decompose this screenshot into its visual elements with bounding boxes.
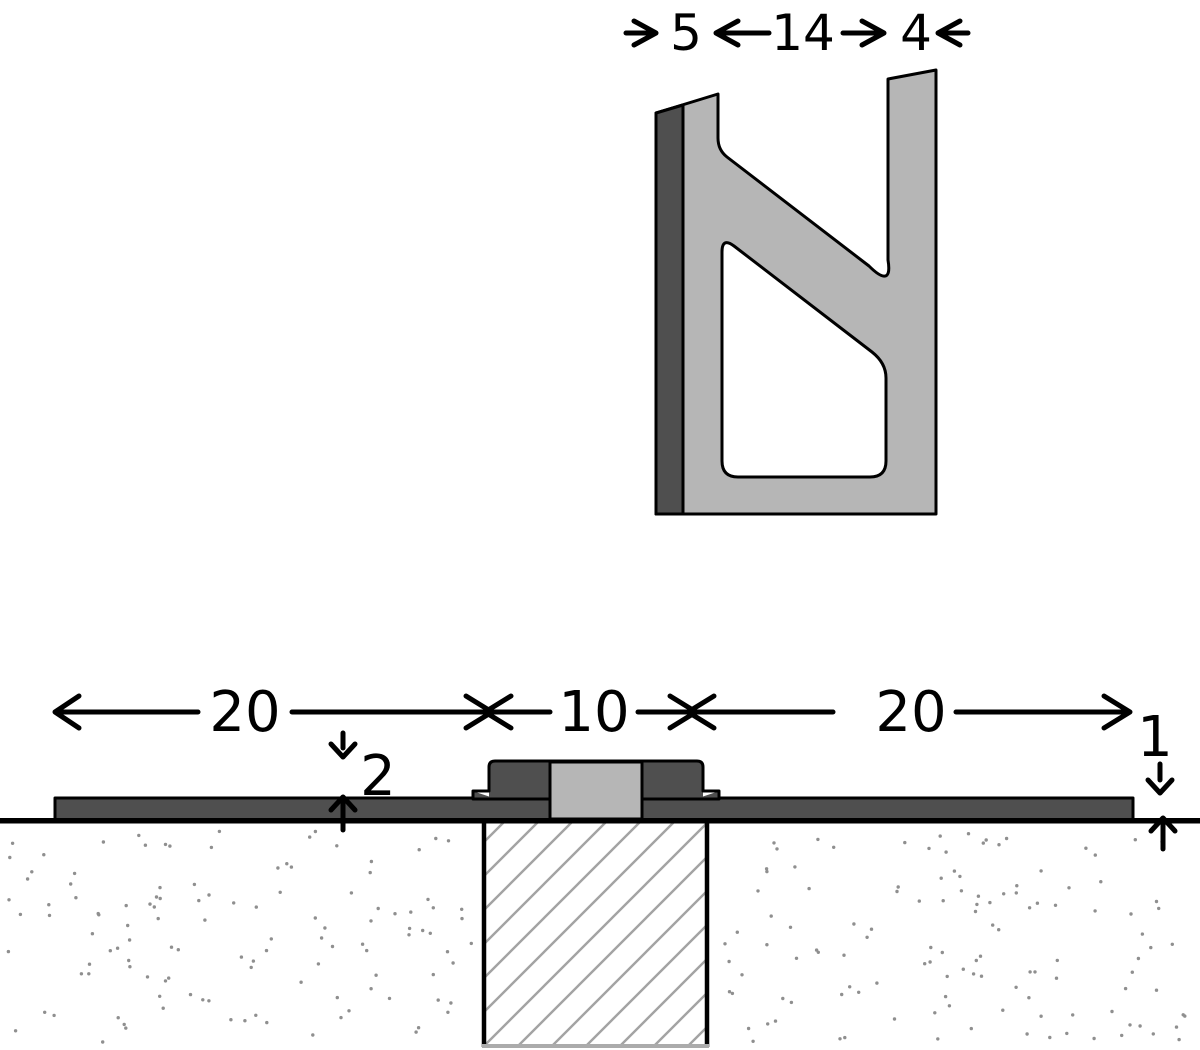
stipple-dot (840, 993, 843, 996)
stipple-dot (285, 862, 288, 865)
stipple-dot (19, 913, 22, 916)
stipple-dot (335, 844, 338, 847)
stipple-dot (852, 922, 855, 925)
stipple-dot (1149, 946, 1152, 949)
stipple-dot (772, 841, 775, 844)
stipple-dot (1171, 943, 1174, 946)
stipple-dot (923, 962, 926, 965)
stipple-dot (740, 973, 743, 976)
stipple-dot (331, 945, 334, 948)
dim-label-right-plate: 20 (875, 680, 946, 745)
profile-gasket-strip (656, 105, 683, 514)
stipple-dot (69, 882, 72, 885)
stipple-dot (1137, 957, 1140, 960)
stipple-dot (795, 957, 798, 960)
stipple-dot (350, 891, 353, 894)
stipple-dot (157, 917, 160, 920)
stipple-dot (942, 899, 945, 902)
stipple-dot (429, 932, 432, 935)
stipple-dot (125, 904, 128, 907)
stipple-dot (1138, 1024, 1141, 1027)
stipple-dot (1056, 959, 1059, 962)
stipple-dot (127, 959, 130, 962)
stipple-dot (731, 992, 734, 995)
stipple-dot (218, 830, 221, 833)
stipple-dot (958, 875, 961, 878)
stipple-dot (370, 860, 373, 863)
stipple-dot (982, 841, 985, 844)
stipple-dot (155, 895, 158, 898)
technical-drawing: 20 10 20 2 1 (0, 0, 1200, 1050)
stipple-dot (148, 902, 151, 905)
stipple-dot (460, 908, 463, 911)
stipple-dot (451, 961, 454, 964)
stipple-dot (270, 937, 273, 940)
stipple-dot (817, 951, 820, 954)
stipple-dot (320, 936, 323, 939)
stipple-dot (918, 899, 921, 902)
stipple-dot (377, 907, 380, 910)
stipple-dot (1048, 1036, 1051, 1039)
stipple-dot (974, 910, 977, 913)
stipple-dot (953, 869, 956, 872)
stipple-dot (967, 832, 970, 835)
stipple-dot (927, 847, 930, 850)
stipple-dot (1099, 880, 1102, 883)
stipple-dot (308, 835, 311, 838)
stipple-dot (865, 936, 868, 939)
stipple-dot (432, 906, 435, 909)
stipple-dot (1054, 904, 1057, 907)
dim-label-edge-thickness: 1 (1137, 705, 1173, 770)
stipple-dot (347, 1009, 350, 1012)
stipple-dot (1131, 971, 1134, 974)
stipple-dot (1155, 900, 1158, 903)
stipple-dot (1027, 996, 1030, 999)
stipple-dot (265, 949, 268, 952)
stipple-dot (893, 1017, 896, 1020)
dim-label-left-plate: 20 (209, 680, 280, 745)
foundation-hatch-fill (482, 821, 709, 1047)
stipple-dot (109, 949, 112, 952)
stipple-dot (985, 838, 988, 841)
stipple-dot (164, 979, 167, 982)
stipple-dot (895, 890, 898, 893)
stipple-dot (936, 1037, 939, 1040)
stipple-dot (168, 844, 171, 847)
stipple-dot (1155, 989, 1158, 992)
stipple-dot (116, 947, 119, 950)
stipple-dot (323, 926, 326, 929)
stipple-dot (52, 1014, 55, 1017)
stipple-dot (988, 901, 991, 904)
stipple-dot (164, 843, 167, 846)
stipple-dot (765, 867, 768, 870)
stipple-dot (144, 844, 147, 847)
stipple-dot (43, 1011, 46, 1014)
stipple-dot (736, 931, 739, 934)
stipple-dot (162, 1007, 165, 1010)
stipple-dot (941, 951, 944, 954)
stipple-dot (243, 1019, 246, 1022)
stipple-dot (434, 837, 437, 840)
stipple-dot (447, 839, 450, 842)
stipple-dot (1110, 1010, 1113, 1013)
stipple-dot (977, 895, 980, 898)
stipple-dot (265, 1021, 268, 1024)
stipple-dot (374, 974, 377, 977)
stipple-dot (14, 1029, 17, 1032)
stipple-dot (747, 1027, 750, 1030)
stipple-dot (751, 1040, 754, 1043)
stipple-dot (26, 877, 29, 880)
stipple-dot (317, 962, 320, 965)
stipple-dot (1093, 909, 1096, 912)
stipple-dot (1065, 1032, 1068, 1035)
dim-label-channel-gap: 14 (771, 4, 835, 62)
stipple-dot (1033, 970, 1036, 973)
stipple-dot (1028, 970, 1031, 973)
stipple-dot (30, 870, 33, 873)
stipple-dot (1120, 1034, 1123, 1037)
stipple-dot (939, 834, 942, 837)
stipple-dot (421, 929, 424, 932)
stipple-dot (1177, 1038, 1180, 1041)
stipple-dot (279, 891, 282, 894)
dim-label-right-wall: 4 (900, 4, 932, 62)
stipple-dot (1039, 1015, 1042, 1018)
stipple-dot (1175, 1025, 1178, 1028)
center-insert (550, 762, 642, 819)
stipple-dot (944, 850, 947, 853)
stipple-dot (189, 993, 192, 996)
stipple-dot (290, 865, 293, 868)
stipple-dot (962, 968, 965, 971)
stipple-dot (393, 912, 396, 915)
stipple-dot (940, 877, 943, 880)
dim-label-center-block: 10 (558, 680, 629, 745)
stipple-dot (1094, 853, 1097, 856)
stipple-dot (1067, 886, 1070, 889)
stipple-dot (1183, 1014, 1186, 1017)
stipple-dot (1129, 912, 1132, 915)
stipple-dot (124, 1026, 127, 1029)
stipple-dot (928, 960, 931, 963)
foundation-block (482, 821, 709, 1047)
stipple-dot (7, 950, 10, 953)
stipple-dot (369, 871, 372, 874)
stipple-dot (1014, 986, 1017, 989)
stipple-dot (80, 972, 83, 975)
stipple-dot (975, 959, 978, 962)
stipple-dot (409, 910, 412, 913)
stipple-dot (960, 889, 963, 892)
stipple-dot (254, 1014, 257, 1017)
stipple-dot (407, 933, 410, 936)
stipple-dot (47, 903, 50, 906)
stipple-dot (1002, 892, 1005, 895)
stipple-dot (470, 942, 473, 945)
stipple-dot (723, 942, 726, 945)
stipple-dot (1025, 1032, 1028, 1035)
stipple-dot (153, 905, 156, 908)
stipple-dot (781, 997, 784, 1000)
stipple-dot (299, 981, 302, 984)
stipple-dot (793, 865, 796, 868)
stipple-dot (252, 959, 255, 962)
stipple-dot (158, 886, 161, 889)
stipple-dot (365, 949, 368, 952)
stipple-dot (42, 853, 45, 856)
stipple-dot (229, 1018, 232, 1021)
stipple-dot (91, 932, 94, 935)
stipple-dot (970, 1027, 973, 1030)
stipple-dot (1141, 932, 1144, 935)
stipple-dot (339, 1016, 342, 1019)
stipple-dot (314, 916, 317, 919)
stipple-dot (369, 919, 372, 922)
stipple-dot (790, 1001, 793, 1004)
stipple-dot (991, 923, 994, 926)
stipple-dot (997, 843, 1000, 846)
stipple-dot (167, 976, 170, 979)
stipple-dot (193, 883, 196, 886)
ground-surface-line (0, 818, 1200, 824)
stipple-dot (857, 991, 860, 994)
stipple-dot (207, 999, 210, 1002)
stipple-dot (832, 846, 835, 849)
stipple-dot (838, 1037, 841, 1040)
stipple-dot (276, 866, 279, 869)
stipple-dot (240, 955, 243, 958)
stipple-dot (446, 1011, 449, 1014)
stipple-dot (250, 966, 253, 969)
stipple-dot (11, 842, 14, 845)
stipple-dot (765, 943, 768, 946)
stipple-dot (159, 897, 162, 900)
stipple-dot (232, 901, 235, 904)
stipple-dot (361, 943, 364, 946)
stipple-dot (1015, 884, 1018, 887)
stipple-dot (417, 1026, 420, 1029)
stipple-dot (897, 885, 900, 888)
stipple-dot (903, 841, 906, 844)
stipple-dot (975, 903, 978, 906)
stipple-dot (1028, 906, 1031, 909)
stipple-dot (8, 856, 11, 859)
stipple-dot (933, 1011, 936, 1014)
stipple-dot (137, 834, 140, 837)
stipple-dot (201, 998, 204, 1001)
stipple-dot (848, 985, 851, 988)
stipple-dot (948, 1004, 951, 1007)
stipple-dot (48, 914, 51, 917)
stipple-dot (789, 926, 792, 929)
stipple-dot (807, 887, 810, 890)
stipple-dot (408, 927, 411, 930)
stipple-dot (756, 889, 759, 892)
stipple-dot (203, 918, 206, 921)
stipple-dot (336, 996, 339, 999)
stipple-dot (388, 997, 391, 1000)
stipple-dot (770, 914, 773, 917)
stipple-dot (1036, 902, 1039, 905)
stipple-dot (314, 830, 317, 833)
stipple-dot (123, 1023, 126, 1026)
stipple-dot (1005, 837, 1008, 840)
stipple-dot (414, 1030, 417, 1033)
stipple-dot (255, 905, 258, 908)
stipple-dot (972, 972, 975, 975)
stipple-dot (1124, 987, 1127, 990)
stipple-dot (816, 838, 819, 841)
stipple-dot (158, 995, 161, 998)
stipple-dot (117, 1016, 120, 1019)
stipple-dot (449, 1001, 452, 1004)
stipple-dot (1134, 838, 1137, 841)
stipple-dot (73, 872, 76, 875)
technical-drawing-page: 20 10 20 2 1 (0, 0, 1200, 1050)
dim-label-left-wall: 5 (670, 4, 702, 62)
profile-dimensions: 5 14 4 (626, 4, 968, 62)
stipple-dot (207, 893, 210, 896)
stipple-dot (979, 955, 982, 958)
stipple-dot (766, 1022, 769, 1025)
stipple-dot (97, 912, 100, 915)
stipple-dot (1001, 1009, 1004, 1012)
stipple-dot (88, 963, 91, 966)
stipple-dot (728, 990, 731, 993)
stipple-dot (727, 960, 730, 963)
stipple-dot (980, 975, 983, 978)
stipple-dot (997, 928, 1000, 931)
stipple-dot (7, 898, 10, 901)
stipple-dot (1152, 1032, 1155, 1035)
stipple-dot (946, 975, 949, 978)
stipple-dot (426, 898, 429, 901)
stipple-dot (1039, 869, 1042, 872)
stipple-dot (210, 846, 213, 849)
stipple-dot (1015, 891, 1018, 894)
stipple-dot (1128, 1023, 1131, 1026)
stipple-dot (437, 998, 440, 1001)
stipple-dot (929, 946, 932, 949)
stipple-dot (126, 924, 129, 927)
stipple-dot (432, 973, 435, 976)
stipple-dot (1071, 1013, 1074, 1016)
stipple-dot (197, 899, 200, 902)
stipple-dot (775, 847, 778, 850)
stipple-dot (128, 938, 131, 941)
stipple-dot (870, 928, 873, 931)
stipple-dot (74, 896, 77, 899)
stipple-dot (101, 1040, 104, 1043)
stipple-dot (1092, 1037, 1095, 1040)
stipple-dot (875, 981, 878, 984)
stipple-dot (102, 840, 105, 843)
stipple-dot (460, 917, 463, 920)
stipple-dot (1055, 977, 1058, 980)
stipple-dot (418, 848, 421, 851)
stipple-dot (843, 1036, 846, 1039)
stipple-dot (369, 987, 372, 990)
dim-label-step-height: 2 (360, 744, 396, 809)
stipple-dot (311, 1033, 314, 1036)
stipple-dot (128, 965, 131, 968)
stipple-dot (446, 950, 449, 953)
stipple-dot (177, 948, 180, 951)
stipple-dot (87, 972, 90, 975)
stipple-dot (146, 975, 149, 978)
stipple-dot (944, 995, 947, 998)
stipple-dot (170, 946, 173, 949)
stipple-dot (774, 1019, 777, 1022)
stipple-dot (1157, 907, 1160, 910)
stipple-dot (842, 954, 845, 957)
stipple-dot (1084, 847, 1087, 850)
